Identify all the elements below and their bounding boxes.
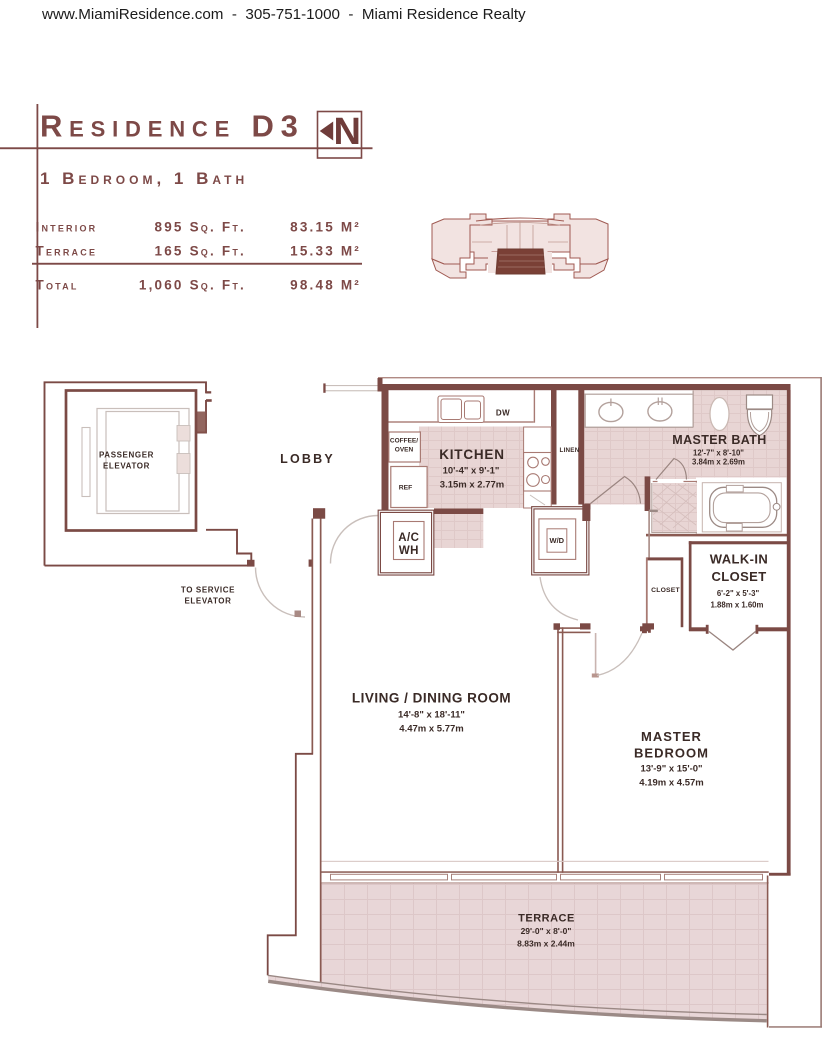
svg-text:TERRACE: TERRACE bbox=[518, 913, 575, 925]
svg-text:29'-0" x 8'-0": 29'-0" x 8'-0" bbox=[521, 926, 572, 936]
svg-text:BEDROOM: BEDROOM bbox=[634, 746, 709, 761]
svg-text:www.MiamiResidence.com - 305: www.MiamiResidence.com - 305-751-1000 - … bbox=[41, 6, 526, 23]
svg-text:OVEN: OVEN bbox=[395, 447, 414, 454]
svg-text:PASSENGER: PASSENGER bbox=[99, 451, 154, 460]
svg-text:LINEN: LINEN bbox=[560, 447, 580, 454]
svg-text:1.88m x 1.60m: 1.88m x 1.60m bbox=[711, 601, 764, 610]
svg-text:12'-7" x 8'-10": 12'-7" x 8'-10" bbox=[693, 449, 744, 458]
svg-text:N: N bbox=[334, 111, 361, 153]
svg-text:KITCHEN: KITCHEN bbox=[439, 447, 505, 462]
svg-text:4.19m x 4.57m: 4.19m x 4.57m bbox=[639, 778, 703, 789]
svg-text:4.47m x 5.77m: 4.47m x 5.77m bbox=[399, 724, 463, 735]
svg-text:1,060 Sq. Ft.: 1,060 Sq. Ft. bbox=[139, 278, 246, 293]
svg-text:DW: DW bbox=[496, 409, 510, 418]
svg-text:13'-9" x 15'-0": 13'-9" x 15'-0" bbox=[640, 764, 702, 775]
svg-text:10'-4" x 9'-1": 10'-4" x 9'-1" bbox=[443, 466, 500, 477]
svg-text:WALK-IN: WALK-IN bbox=[710, 552, 768, 567]
svg-text:14'-8" x 18'-11": 14'-8" x 18'-11" bbox=[398, 710, 465, 721]
svg-text:Interior: Interior bbox=[36, 220, 98, 235]
svg-text:83.15 M²: 83.15 M² bbox=[290, 220, 361, 235]
svg-text:WH: WH bbox=[399, 545, 419, 557]
svg-text:TO SERVICE: TO SERVICE bbox=[181, 586, 235, 595]
svg-text:MASTER: MASTER bbox=[641, 729, 702, 744]
svg-text:ELEVATOR: ELEVATOR bbox=[184, 597, 231, 606]
svg-text:COFFEE/: COFFEE/ bbox=[390, 438, 418, 445]
svg-text:Total: Total bbox=[36, 278, 79, 293]
svg-text:CLOSET: CLOSET bbox=[711, 569, 766, 584]
svg-text:15.33 M²: 15.33 M² bbox=[290, 244, 361, 259]
svg-text:MASTER BATH: MASTER BATH bbox=[672, 433, 766, 447]
svg-text:Residence D3: Residence D3 bbox=[40, 109, 305, 144]
svg-text:W/D: W/D bbox=[550, 536, 565, 545]
svg-text:REF: REF bbox=[399, 485, 413, 492]
svg-text:Terrace: Terrace bbox=[36, 244, 98, 259]
svg-text:895 Sq. Ft.: 895 Sq. Ft. bbox=[155, 220, 246, 235]
svg-text:6'-2" x 5'-3": 6'-2" x 5'-3" bbox=[717, 589, 760, 598]
svg-text:165 Sq. Ft.: 165 Sq. Ft. bbox=[155, 244, 246, 259]
svg-text:CLOSET: CLOSET bbox=[651, 587, 680, 594]
svg-text:LIVING / DINING ROOM: LIVING / DINING ROOM bbox=[352, 691, 511, 706]
svg-text:98.48 M²: 98.48 M² bbox=[290, 278, 361, 293]
svg-text:ELEVATOR: ELEVATOR bbox=[103, 462, 150, 471]
svg-text:3.15m x 2.77m: 3.15m x 2.77m bbox=[440, 480, 504, 491]
svg-text:1 Bedroom, 1 Bath: 1 Bedroom, 1 Bath bbox=[40, 169, 248, 188]
svg-text:8.83m x 2.44m: 8.83m x 2.44m bbox=[517, 939, 575, 949]
svg-text:3.84m x 2.69m: 3.84m x 2.69m bbox=[692, 458, 745, 467]
svg-text:LOBBY: LOBBY bbox=[280, 452, 335, 466]
svg-text:A/C: A/C bbox=[398, 532, 419, 544]
